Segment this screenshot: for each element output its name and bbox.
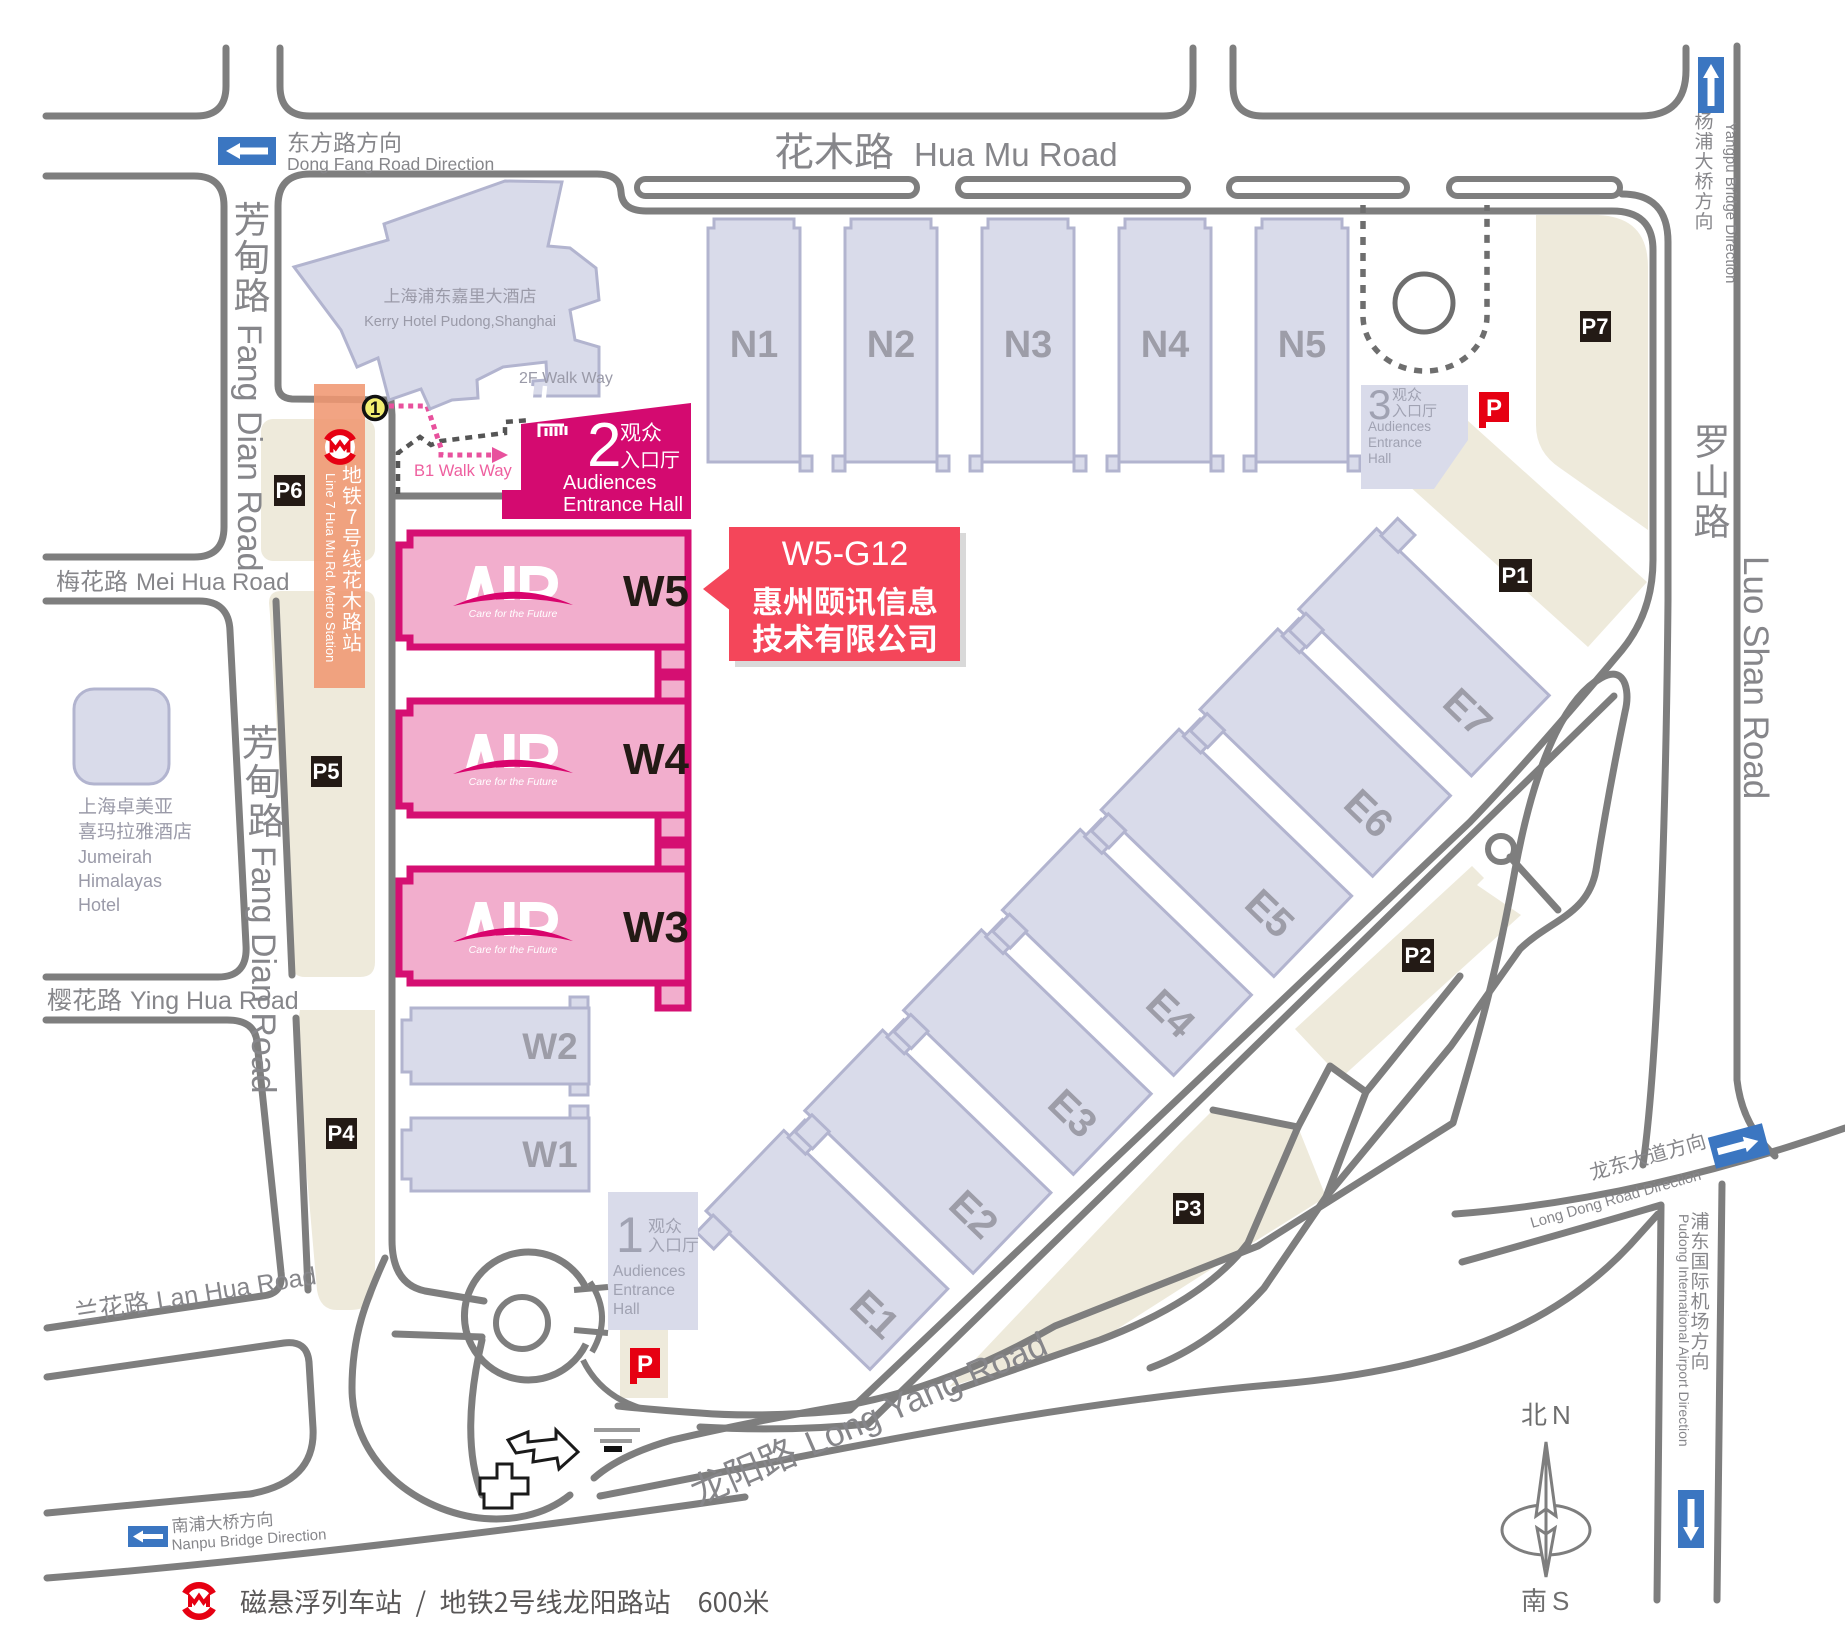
svg-text:P6: P6 [276,478,303,503]
svg-text:W5: W5 [623,567,689,616]
svg-text:N1: N1 [730,324,779,366]
svg-text:1: 1 [370,399,381,420]
svg-text:Entrance: Entrance [613,1282,675,1299]
svg-text:P7: P7 [1582,314,1609,339]
svg-text:P5: P5 [313,759,340,784]
svg-text:W3: W3 [623,903,689,952]
svg-text:P: P [637,1351,653,1378]
svg-text:Luo Shan Road: Luo Shan Road [1736,556,1775,799]
svg-text:W5-G12: W5-G12 [782,535,909,573]
svg-text:W2: W2 [522,1026,578,1067]
svg-text:Entrance: Entrance [1368,435,1422,450]
svg-text:Fang Dian Road: Fang Dian Road [230,324,268,572]
svg-text:Hall: Hall [1368,451,1391,466]
svg-text:P1: P1 [1502,563,1529,588]
svg-text:Mei Hua Road: Mei Hua Road [136,569,289,596]
svg-text:Entrance Hall: Entrance Hall [563,494,683,516]
svg-text:Audiences: Audiences [563,472,656,494]
svg-text:Fang Dian Road: Fang Dian Road [244,846,282,1094]
svg-text:Hua Mu Road: Hua Mu Road [914,136,1118,173]
svg-text:2: 2 [587,411,621,480]
svg-text:Hotel: Hotel [78,895,120,915]
svg-text:Himalayas: Himalayas [78,871,162,891]
svg-text:N: N [1552,1400,1571,1430]
svg-text:Pudong International Airport D: Pudong International Airport Direction [1676,1214,1692,1447]
svg-text:Yangpu Bridge Direction: Yangpu Bridge Direction [1722,122,1739,283]
svg-text:W1: W1 [522,1134,578,1175]
svg-text:P3: P3 [1175,1196,1202,1221]
svg-text:P4: P4 [328,1121,356,1146]
svg-text:N3: N3 [1004,324,1053,366]
svg-text:Hall: Hall [613,1301,640,1318]
svg-text:Kerry Hotel Pudong,Shanghai: Kerry Hotel Pudong,Shanghai [364,314,556,330]
svg-text:Jumeirah: Jumeirah [78,847,152,867]
svg-text:S: S [1552,1586,1569,1616]
svg-text:N5: N5 [1278,324,1327,366]
svg-text:P2: P2 [1405,943,1432,968]
svg-text:W4: W4 [623,735,690,784]
svg-text:Line 7 Hua Mu Rd. Metro Statio: Line 7 Hua Mu Rd. Metro Station [323,473,338,662]
svg-text:2F Walk Way: 2F Walk Way [519,370,613,387]
svg-text:P: P [1486,395,1502,422]
svg-text:Audiences: Audiences [1368,419,1431,434]
svg-text:N2: N2 [867,324,916,366]
svg-text:1: 1 [616,1207,644,1263]
svg-text:Dong Fang Road Direction: Dong Fang Road Direction [287,154,494,174]
svg-text:B1 Walk Way: B1 Walk Way [414,462,513,480]
svg-text:N4: N4 [1141,324,1190,366]
svg-text:Audiences: Audiences [613,1263,686,1280]
